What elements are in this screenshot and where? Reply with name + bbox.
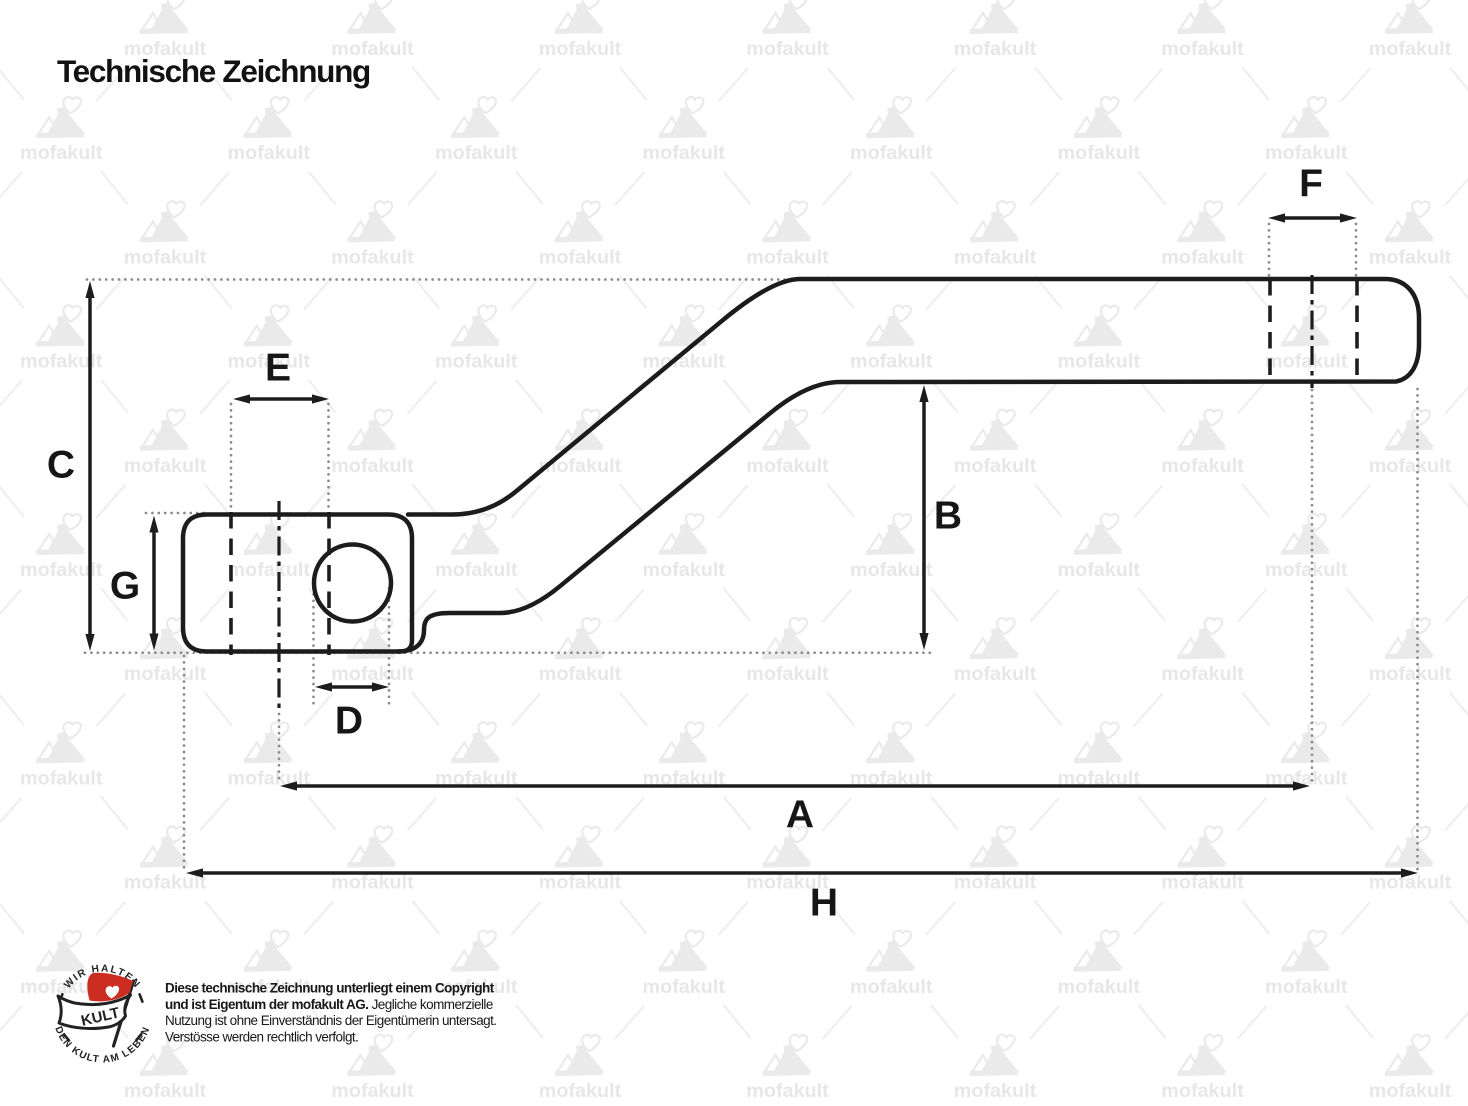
svg-text:Verstösse werden rechtlich ver: Verstösse werden rechtlich verfolgt. [165, 1029, 358, 1044]
svg-text:und ist Eigentum der mofakult: und ist Eigentum der mofakult AG. Jeglic… [165, 997, 493, 1012]
svg-text:D: D [335, 700, 363, 743]
svg-text:Diese technische Zeichnung unt: Diese technische Zeichnung unterliegt ei… [165, 981, 495, 996]
svg-text:E: E [265, 347, 291, 390]
svg-text:Technische Zeichnung: Technische Zeichnung [57, 53, 370, 89]
svg-text:H: H [810, 882, 838, 925]
svg-text:F: F [1299, 163, 1323, 206]
svg-text:Nutzung ist ohne Einverständni: Nutzung ist ohne Einverständnis der Eige… [165, 1013, 497, 1028]
svg-text:G: G [110, 565, 140, 608]
svg-text:A: A [786, 794, 814, 837]
svg-text:B: B [934, 495, 962, 538]
svg-text:C: C [47, 444, 75, 487]
